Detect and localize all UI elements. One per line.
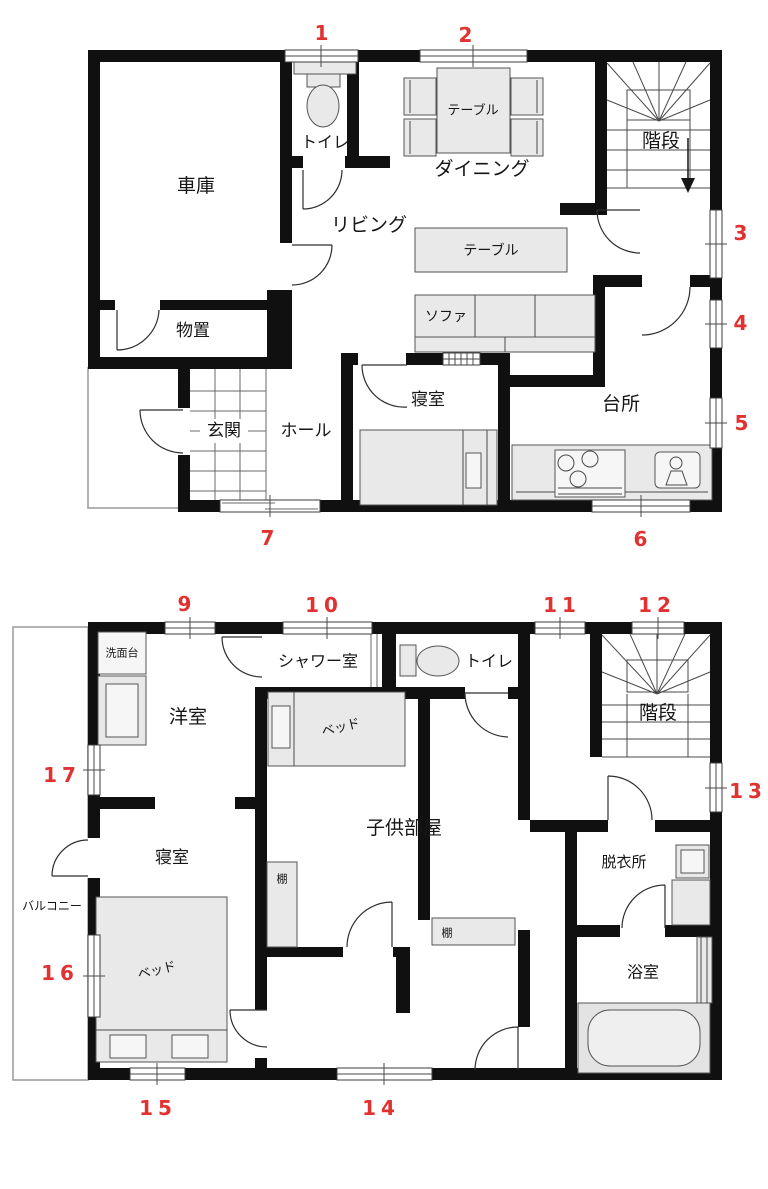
floor1-stairs bbox=[607, 62, 710, 193]
window-15 bbox=[130, 1063, 185, 1085]
window-10 bbox=[283, 617, 372, 639]
toilet-fixture-1f bbox=[294, 62, 356, 127]
window-number-5: 5 bbox=[735, 411, 754, 435]
balcony-door-opening bbox=[86, 838, 102, 878]
label-sofa: ソファ bbox=[425, 309, 467, 325]
label-dining-table: テーブル bbox=[447, 103, 498, 119]
window-13 bbox=[705, 763, 727, 812]
label-kids-room: 子供部屋 bbox=[366, 817, 442, 839]
label-dining: ダイニング bbox=[434, 158, 529, 180]
window-17 bbox=[83, 745, 105, 795]
floor2-stairs bbox=[602, 634, 710, 757]
floor-plan-drawing: 車庫 トイレ リビング ダイニング 階段 物置 ホール 寝室 台所 テーブル テ… bbox=[0, 0, 768, 1184]
window-11 bbox=[535, 617, 585, 639]
window-number-4: 4 bbox=[734, 311, 753, 335]
window-5 bbox=[705, 398, 727, 448]
label-stairs-2f: 階段 bbox=[639, 702, 677, 724]
kitchen-counter bbox=[512, 445, 712, 500]
window-number-16: 16 bbox=[41, 961, 79, 985]
laundry-units bbox=[672, 845, 710, 925]
window-2 bbox=[420, 45, 527, 67]
window-3 bbox=[705, 210, 727, 278]
label-bedroom-2f: 寝室 bbox=[155, 847, 189, 868]
window-14 bbox=[337, 1063, 432, 1085]
label-toilet-1f: トイレ bbox=[301, 133, 349, 152]
label-shelf-2: 棚 bbox=[442, 926, 453, 940]
window-4 bbox=[705, 300, 727, 348]
floor2-plan: 洗面台 洋室 シャワー室 トイレ 階段 寝室 子供部屋 脱衣所 浴室 バルコニー… bbox=[13, 592, 767, 1120]
window-number-1: 1 bbox=[315, 21, 334, 45]
window-number-3: 3 bbox=[734, 221, 753, 245]
label-shower-room: シャワー室 bbox=[278, 652, 358, 671]
bed-master bbox=[96, 897, 227, 1062]
bathtub bbox=[578, 937, 712, 1073]
label-bedroom-1f: 寝室 bbox=[411, 389, 445, 410]
label-toilet-2f: トイレ bbox=[465, 652, 513, 671]
label-living: リビング bbox=[331, 214, 407, 236]
window-number-11: 11 bbox=[543, 593, 581, 617]
window-number-12: 12 bbox=[638, 593, 676, 617]
label-balcony: バルコニー bbox=[22, 899, 82, 913]
bedroom-sliding-door bbox=[443, 353, 480, 365]
window-number-15: 15 bbox=[139, 1096, 177, 1120]
stairs-down-arrow bbox=[681, 178, 695, 193]
balcony-outline bbox=[13, 627, 88, 1080]
shower-partition bbox=[371, 634, 377, 687]
label-storage: 物置 bbox=[176, 321, 210, 341]
label-western-room: 洋室 bbox=[169, 706, 207, 728]
toilet-fixture-2f bbox=[400, 645, 459, 676]
label-kitchen: 台所 bbox=[602, 393, 640, 415]
window-number-10: 10 bbox=[305, 593, 343, 617]
entrance-door-7 bbox=[220, 495, 320, 517]
label-living-table: テーブル bbox=[463, 242, 518, 259]
floor1-plan: 車庫 トイレ リビング ダイニング 階段 物置 ホール 寝室 台所 テーブル テ… bbox=[88, 21, 753, 551]
porch-outline bbox=[88, 367, 183, 508]
window-number-17: 17 bbox=[43, 763, 81, 787]
window-number-13: 13 bbox=[729, 779, 767, 803]
label-dressing-room: 脱衣所 bbox=[601, 853, 646, 871]
label-garage: 車庫 bbox=[177, 175, 215, 197]
label-entrance: 玄関 bbox=[207, 421, 241, 441]
label-washstand: 洗面台 bbox=[106, 646, 139, 660]
window-number-9: 9 bbox=[178, 592, 197, 616]
bed-1f bbox=[360, 430, 497, 505]
window-12 bbox=[632, 617, 684, 639]
label-stairs-1f: 階段 bbox=[642, 130, 680, 152]
window-number-7: 7 bbox=[261, 526, 280, 550]
label-bathroom: 浴室 bbox=[627, 963, 659, 982]
window-number-6: 6 bbox=[634, 527, 653, 551]
window-9 bbox=[165, 617, 215, 639]
floor-plan-page: 車庫 トイレ リビング ダイニング 階段 物置 ホール 寝室 台所 テーブル テ… bbox=[0, 0, 768, 1184]
window-number-2: 2 bbox=[459, 23, 478, 47]
label-shelf-1: 棚 bbox=[277, 872, 288, 886]
label-hall: ホール bbox=[281, 421, 332, 441]
window-number-14: 14 bbox=[362, 1096, 400, 1120]
